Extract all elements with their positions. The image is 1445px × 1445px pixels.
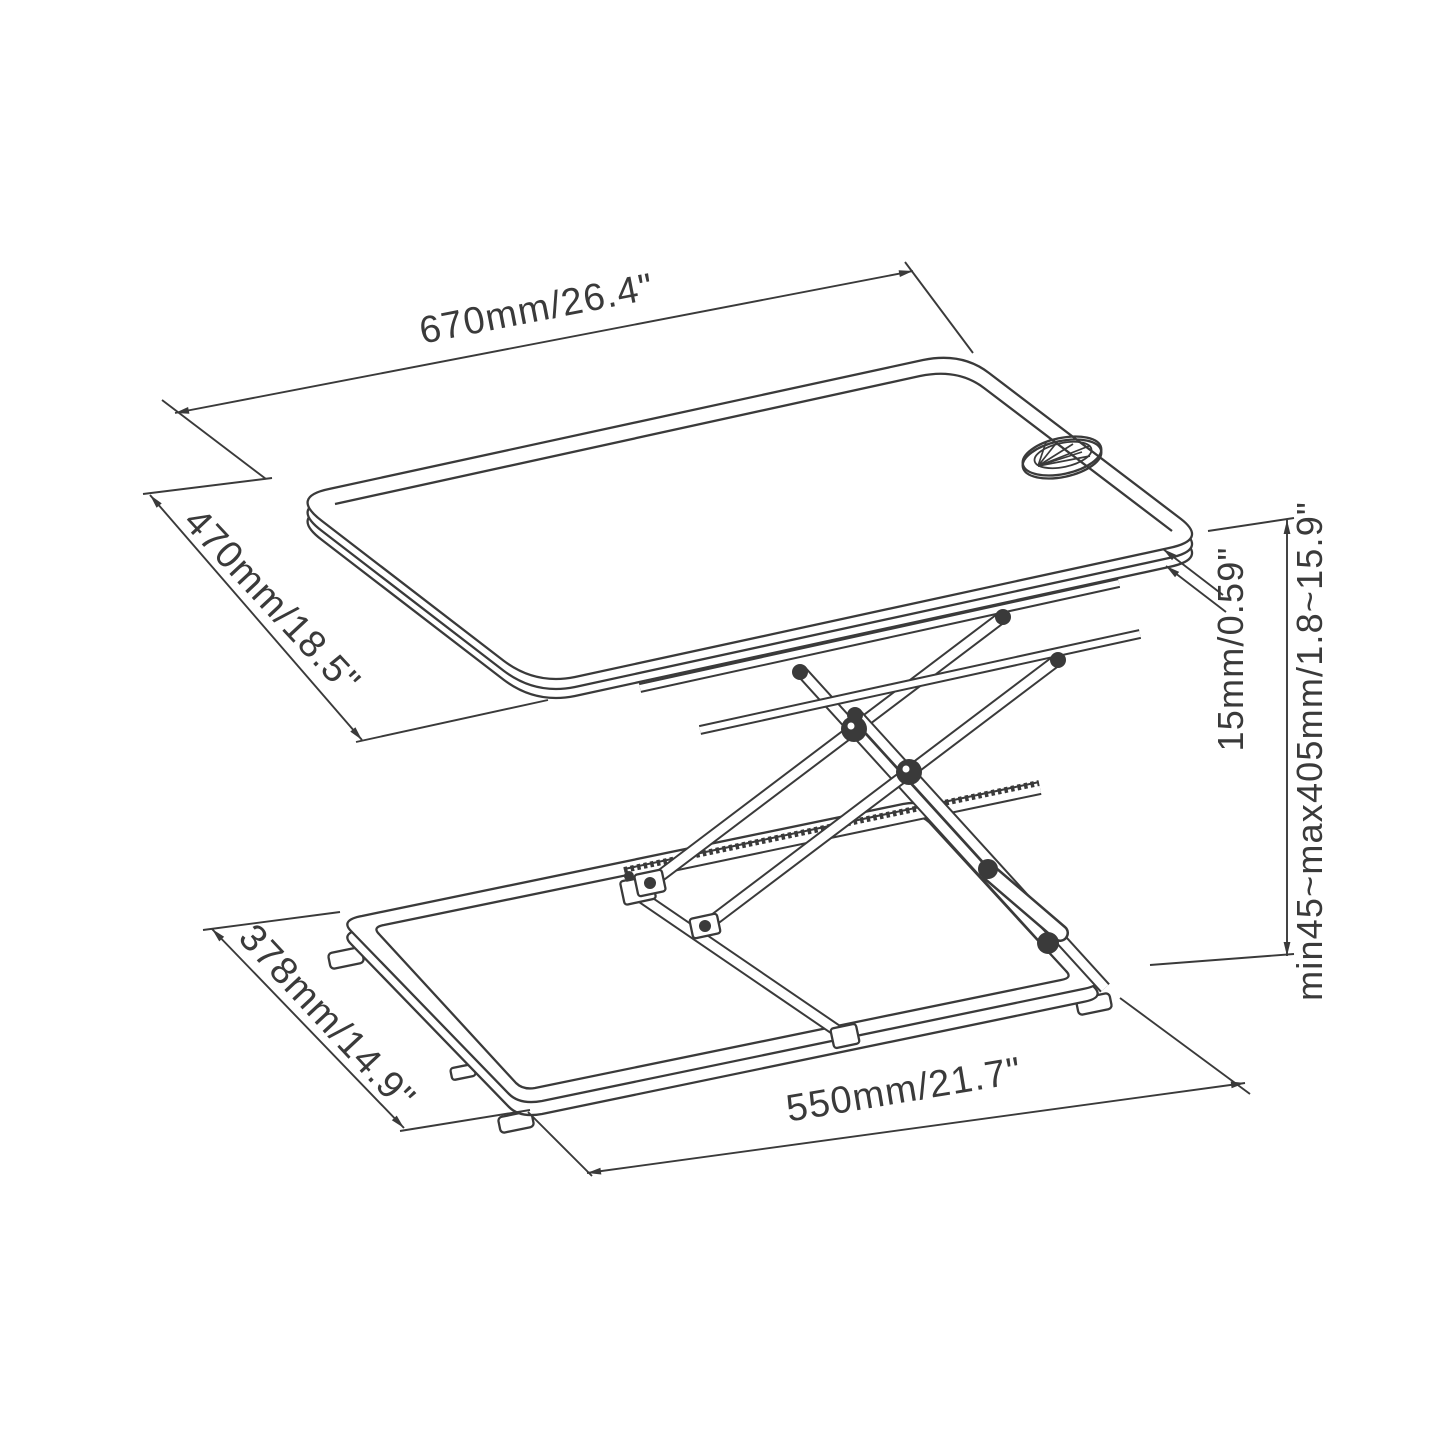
extension-line bbox=[1208, 518, 1294, 531]
extension-line bbox=[528, 1112, 592, 1176]
drawing-canvas: 670mm/26.4" 470mm/18.5" 15mm/0.59" min45… bbox=[0, 0, 1445, 1445]
dim-label-height-range: min45~max405mm/1.8~15.9" bbox=[1289, 501, 1330, 1001]
extension-line bbox=[143, 478, 272, 494]
technical-drawing-page: 670mm/26.4" 470mm/18.5" 15mm/0.59" min45… bbox=[0, 0, 1445, 1445]
extension-line bbox=[1120, 998, 1250, 1094]
extension-line bbox=[1150, 954, 1294, 965]
dim-label-tabletop-width: 670mm/26.4" bbox=[416, 266, 658, 353]
extension-line bbox=[905, 262, 973, 353]
extension-line bbox=[356, 700, 548, 742]
dim-label-tabletop-thickness: 15mm/0.59" bbox=[1210, 547, 1251, 752]
